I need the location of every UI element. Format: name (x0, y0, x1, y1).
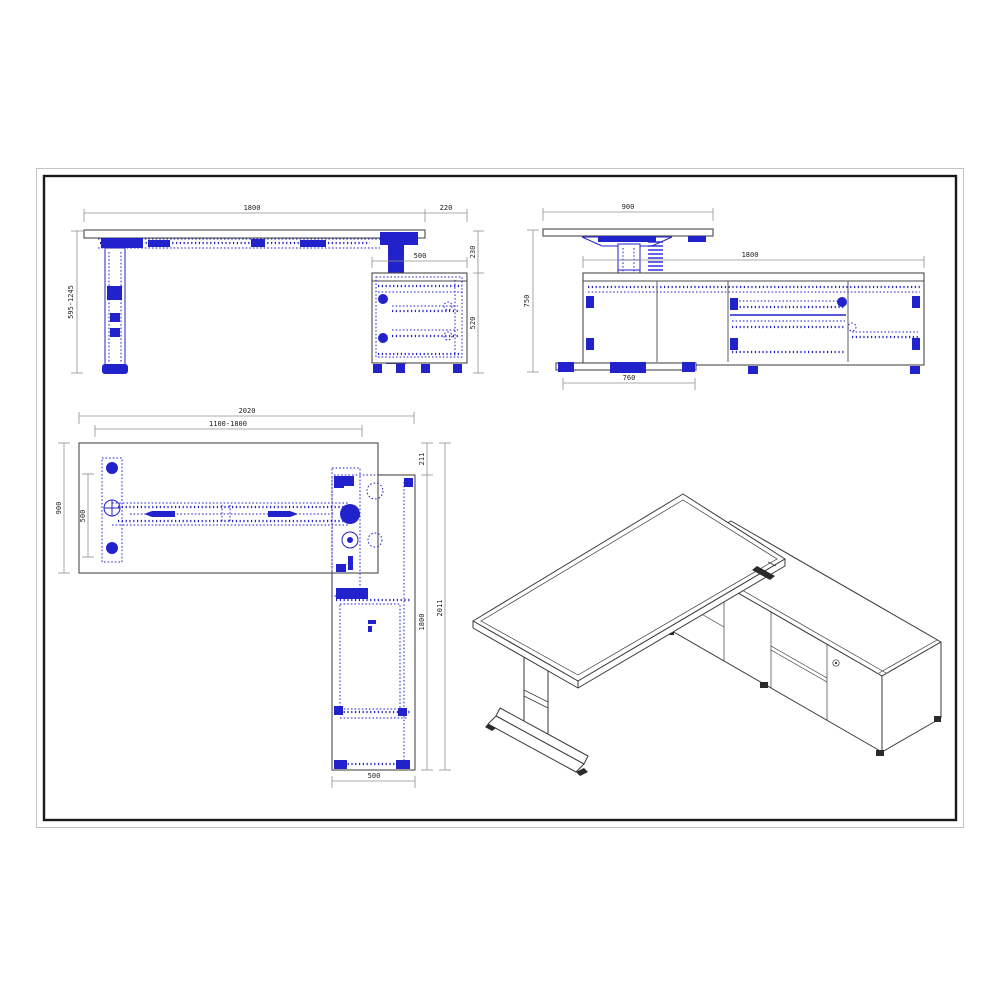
dim-label-desk-depth-plan: 900 (55, 502, 63, 515)
dim-label-foot-length: 760 (623, 374, 636, 382)
credenza-side (583, 273, 924, 374)
dim-label-desk-depth: 900 (622, 203, 635, 211)
dim-label-overall-height: 750 (523, 295, 531, 308)
dim-label-desk-width-range: 1100-1800 (209, 420, 247, 428)
dim-label-cabinet-height: 520 (469, 317, 477, 330)
dim-label-overall-depth: 2011 (436, 600, 444, 617)
dim-label-cabinet-depth: 500 (368, 772, 381, 780)
credenza-foot (876, 750, 884, 756)
dim-label-cabinet-length: 1800 (418, 614, 426, 631)
dim-label-height-range: 595-1245 (67, 285, 75, 319)
credenza-foot (760, 682, 768, 688)
cabinet-front (372, 273, 467, 373)
desk-top-side (543, 229, 713, 236)
dim-label-desk-width: 1800 (244, 204, 261, 212)
dim-label-cabinet-width: 500 (414, 252, 427, 260)
desk-top-front (84, 230, 425, 238)
dim-label-top-to-cabinet: 230 (469, 246, 477, 259)
dim-label-overall-length: 2020 (239, 407, 256, 415)
dim-label-corner-gap: 211 (418, 453, 426, 466)
credenza-foot (934, 716, 941, 722)
dim-label-leg-frame-span: 500 (79, 510, 87, 523)
desk-leg-front (102, 248, 128, 374)
drawing-sheet: 1800 220 (0, 0, 1000, 1000)
dim-label-credenza-length: 1800 (742, 251, 759, 259)
dim-label-overhang: 220 (440, 204, 453, 212)
